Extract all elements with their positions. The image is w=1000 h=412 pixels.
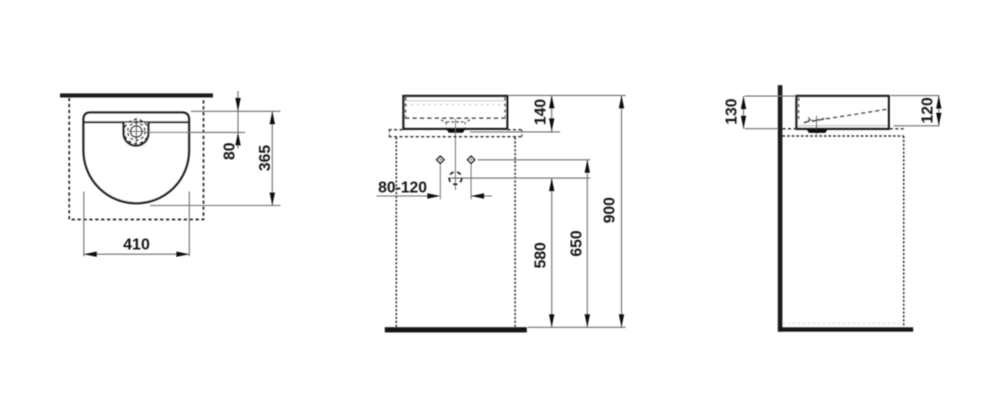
svg-text:650: 650 <box>569 230 586 256</box>
svg-text:80: 80 <box>221 142 238 160</box>
svg-text:365: 365 <box>257 145 274 171</box>
svg-text:140: 140 <box>532 99 549 125</box>
svg-text:580: 580 <box>533 242 550 268</box>
svg-text:80-120: 80-120 <box>378 180 427 197</box>
svg-text:120: 120 <box>920 97 937 123</box>
svg-text:410: 410 <box>123 237 150 254</box>
svg-text:130: 130 <box>724 98 741 124</box>
svg-text:900: 900 <box>602 197 619 223</box>
